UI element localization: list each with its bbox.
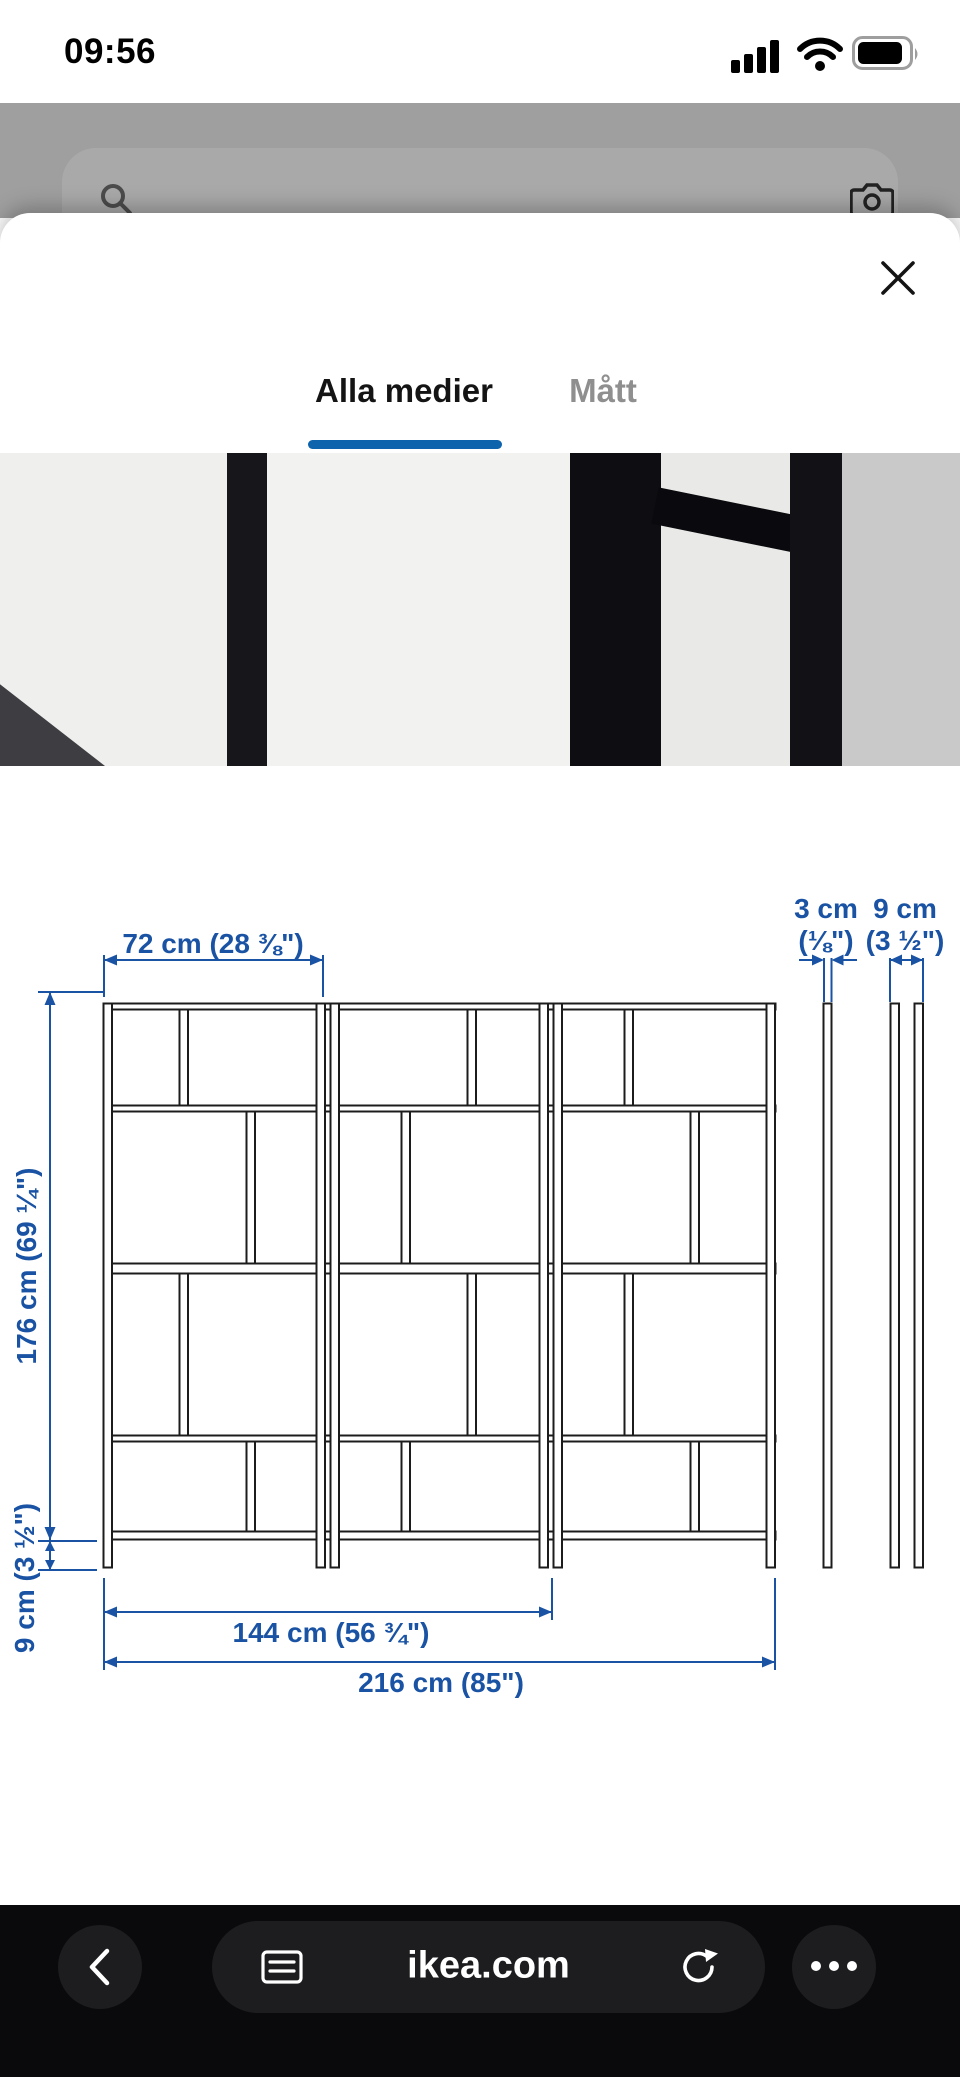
close-icon[interactable] bbox=[876, 256, 920, 300]
photo-frame-post bbox=[570, 453, 661, 766]
tab-alla-medier[interactable]: Alla medier bbox=[315, 372, 493, 410]
ellipsis-icon bbox=[807, 1958, 861, 1975]
cellular-signal-icon bbox=[731, 38, 787, 74]
status-bar: 09:56 bbox=[0, 0, 960, 103]
more-options-button[interactable] bbox=[792, 1925, 876, 2009]
product-photo[interactable] bbox=[0, 453, 960, 766]
dim-depth-in: (3 ½") bbox=[866, 925, 945, 956]
browser-page-header: Vad letar du efter? bbox=[0, 103, 960, 218]
dimension-diagram: 72 cm (28 ⅜") 3 cm (⅛") 9 cm (3 ½") 176 … bbox=[0, 880, 960, 1720]
wifi-icon bbox=[797, 37, 843, 73]
address-bar[interactable]: ikea.com bbox=[212, 1921, 765, 2013]
photo-frame-post bbox=[790, 453, 842, 766]
reload-icon[interactable] bbox=[677, 1945, 721, 1989]
dim-thickness-in: (⅛") bbox=[798, 925, 853, 956]
active-tab-underline bbox=[308, 440, 502, 449]
search-icon bbox=[98, 181, 134, 217]
back-chevron-icon bbox=[82, 1945, 118, 1989]
photo-background bbox=[842, 453, 960, 766]
dim-total-width: 216 cm (85") bbox=[358, 1667, 524, 1698]
photo-panel bbox=[267, 453, 570, 766]
photo-frame-post bbox=[227, 453, 267, 766]
photo-shadow-wedge bbox=[0, 671, 105, 766]
dim-depth-cm: 9 cm bbox=[873, 893, 937, 924]
dim-section-width: 72 cm (28 ⅜") bbox=[122, 928, 303, 959]
tab-matt[interactable]: Mått bbox=[569, 372, 637, 410]
status-time: 09:56 bbox=[64, 32, 156, 72]
dim-base-height: 9 cm (3 ½") bbox=[9, 1503, 40, 1653]
url-text: ikea.com bbox=[407, 1945, 570, 1988]
dim-two-section-width: 144 cm (56 ¾") bbox=[233, 1617, 430, 1648]
dim-total-height: 176 cm (69 ¼") bbox=[11, 1168, 42, 1365]
page-format-icon[interactable] bbox=[260, 1947, 304, 1987]
safari-toolbar: ikea.com bbox=[0, 1905, 960, 2077]
back-button[interactable] bbox=[58, 1925, 142, 2009]
battery-icon bbox=[852, 36, 922, 72]
dim-thickness-cm: 3 cm bbox=[794, 893, 858, 924]
